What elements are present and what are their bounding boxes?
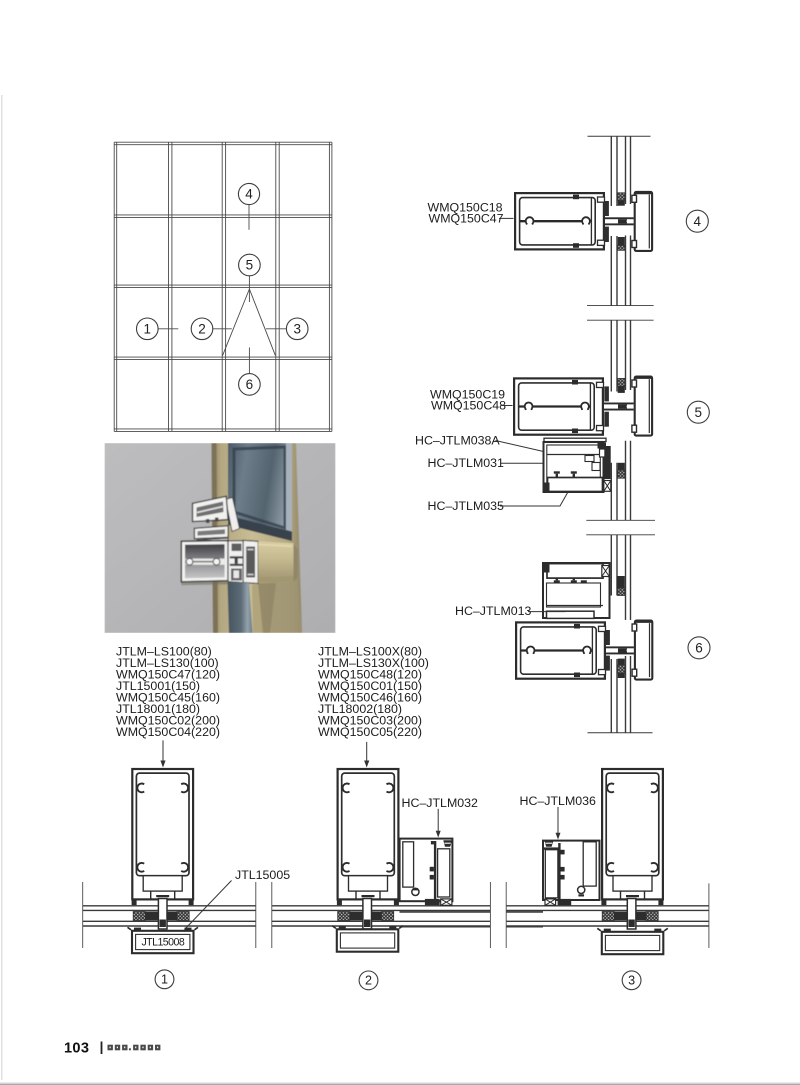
svg-text:HC–JTLM013: HC–JTLM013 [455, 604, 532, 618]
svg-text:2: 2 [198, 321, 206, 336]
svg-text:5: 5 [246, 258, 254, 273]
svg-text:WMQ150C48: WMQ150C48 [431, 399, 506, 413]
svg-text:WMQ150C47: WMQ150C47 [429, 212, 504, 226]
svg-text:HC–JTLM038A: HC–JTLM038A [415, 433, 500, 447]
svg-text:3: 3 [628, 974, 635, 988]
svg-text:HC–JTLM036: HC–JTLM036 [520, 794, 597, 808]
svg-text:3: 3 [293, 321, 301, 336]
svg-text:103: 103 [64, 1041, 89, 1057]
svg-text:HC–JTLM035: HC–JTLM035 [428, 499, 505, 513]
svg-text:JTL15005: JTL15005 [235, 868, 290, 882]
svg-text:JTL15008: JTL15008 [141, 937, 184, 949]
svg-text:1: 1 [161, 973, 168, 987]
svg-text:6: 6 [695, 641, 703, 656]
svg-text:5: 5 [695, 405, 703, 420]
svg-text:WMQ150C05(220): WMQ150C05(220) [318, 725, 422, 739]
svg-text:6: 6 [246, 377, 254, 392]
svg-text:1: 1 [144, 321, 152, 336]
svg-text:4: 4 [694, 214, 702, 229]
svg-text:WMQ150C04(220): WMQ150C04(220) [116, 725, 220, 739]
svg-text:HC–JTLM031: HC–JTLM031 [428, 456, 505, 470]
svg-text:4: 4 [245, 187, 253, 202]
svg-text:HC–JTLM032: HC–JTLM032 [402, 796, 479, 810]
svg-text:2: 2 [365, 974, 372, 988]
